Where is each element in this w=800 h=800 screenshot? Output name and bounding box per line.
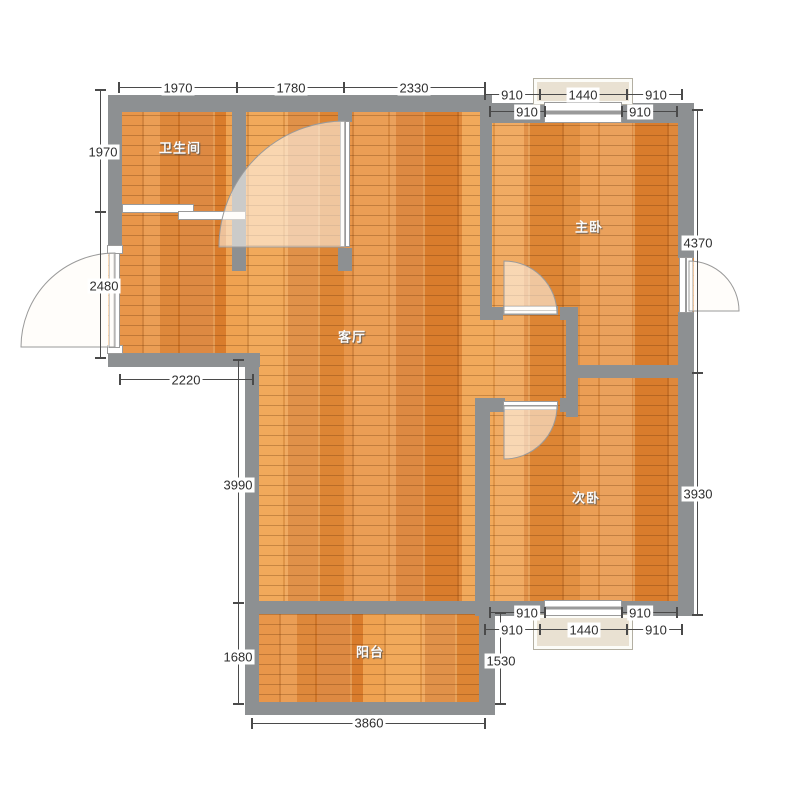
dim-label: 1530 [485,654,518,669]
dim-label: 3990 [222,478,255,493]
tick [621,106,623,117]
dim-label: 910 [514,105,540,120]
wall-exterior-left-upper [108,95,122,253]
tick [626,624,628,635]
wall-bathroom-right [232,112,246,271]
dim-label: 1440 [567,88,600,103]
dim-line-right [697,110,698,616]
tick [681,624,683,635]
dim-label: 3860 [353,716,386,731]
dim-label: 2480 [88,279,121,294]
dim-label: 910 [643,623,669,638]
tick [495,703,506,705]
wall-master-bottom-left [480,307,503,320]
dim-label: 1680 [222,650,255,665]
dim-label: 1440 [568,623,601,638]
wall-master-left [480,123,492,320]
tick [676,607,678,618]
room-label-living-room: 客厅 [338,327,366,346]
room-label-second-bedroom: 次卧 [572,488,600,507]
master-door-leaf [503,306,558,315]
dim-label: 910 [499,623,525,638]
tick [251,718,253,729]
tick [484,89,486,100]
tick [539,624,541,635]
tick [118,82,120,93]
wall-second-top-right [560,398,568,412]
window-glass-master [544,102,622,123]
window-glass-second [544,600,622,616]
tick [489,106,491,117]
wall-balcony-bottom [245,702,495,715]
room-label-balcony: 阳台 [356,642,384,661]
tick [233,359,244,361]
wall-second-left [475,398,490,616]
room-label-master-bedroom: 主卧 [575,217,603,236]
tick [692,614,703,616]
dim-label: 1970 [162,81,195,96]
tick [233,703,244,705]
dim-label: 2220 [170,373,203,388]
wall-master-second-divider [578,365,678,378]
dim-label: 910 [499,88,525,103]
wall-midroom-right-lower [338,248,352,271]
wall-exterior-right-lower [678,312,694,616]
tick [676,106,678,117]
dim-label: 4370 [682,236,715,251]
bathroom-sliding-door-panel-2 [178,211,246,220]
dim-label: 2330 [398,81,431,96]
dim-label: 910 [627,606,653,621]
tick [343,82,345,93]
dim-label: 910 [643,88,669,103]
tick [681,89,683,100]
floorplan-canvas: 1970 1780 2330 1970 2480 2220 3990 1680 … [0,0,800,800]
tick [539,89,541,100]
tick [484,718,486,729]
second-door-leaf [503,401,558,410]
tick [489,607,491,618]
tick [692,372,703,374]
midroom-door-leaf [340,121,350,247]
right-exterior-door-leaf [679,257,693,313]
tick [95,89,106,91]
tick [621,607,623,618]
tick [233,602,244,604]
dim-label: 910 [627,105,653,120]
tick [119,374,121,385]
room-label-bathroom: 卫生间 [159,138,201,157]
wall-living-balcony-divider [252,601,487,614]
floor-balcony [245,614,495,715]
tick [95,211,106,213]
tick [252,374,254,385]
tick [544,607,546,618]
tick [626,89,628,100]
tick [484,624,486,635]
entrance-door-leaf [109,253,120,348]
tick [236,82,238,93]
dim-label: 1780 [275,81,308,96]
dim-label: 1970 [87,145,120,160]
tick [544,106,546,117]
tick [692,109,703,111]
dim-label: 910 [514,606,540,621]
dim-label: 3930 [682,487,715,502]
dim-line-left [100,90,101,358]
wall-exterior-top-left [108,95,492,112]
tick [95,357,106,359]
